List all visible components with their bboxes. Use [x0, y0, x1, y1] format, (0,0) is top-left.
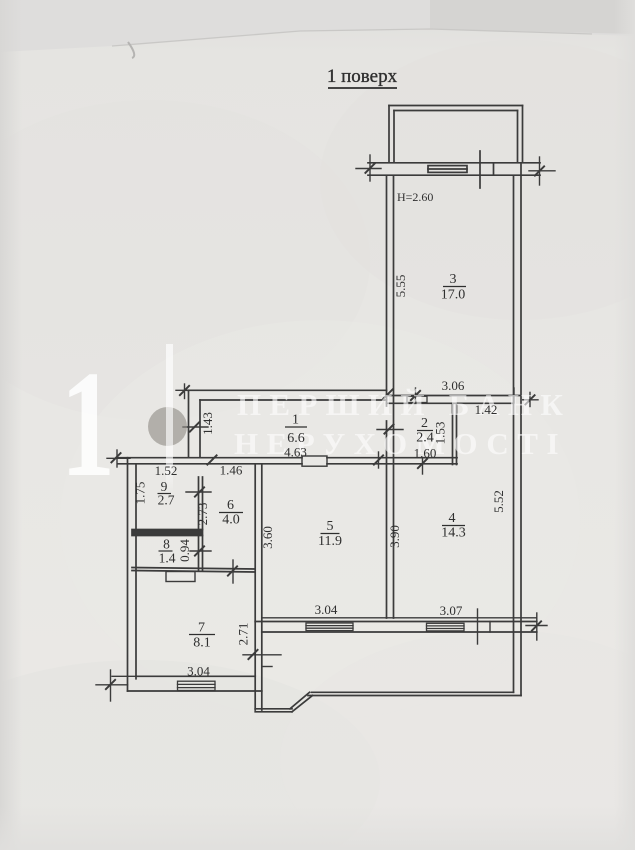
svg-text:8: 8	[163, 537, 170, 552]
svg-text:1.52: 1.52	[155, 463, 178, 478]
svg-text:1: 1	[61, 339, 116, 508]
svg-text:1.75: 1.75	[133, 482, 148, 505]
svg-text:1.4: 1.4	[159, 551, 176, 566]
svg-text:2.71: 2.71	[236, 623, 251, 646]
svg-text:1 поверх: 1 поверх	[327, 66, 398, 87]
svg-text:5: 5	[327, 519, 334, 534]
svg-text:2.7: 2.7	[158, 493, 175, 508]
svg-text:3: 3	[450, 272, 457, 287]
svg-text:3.04: 3.04	[315, 602, 338, 617]
svg-text:1.60: 1.60	[414, 446, 437, 461]
svg-text:1.43: 1.43	[200, 412, 215, 435]
svg-text:ПЕРШИЙ БАНК: ПЕРШИЙ БАНК	[237, 387, 571, 422]
svg-text:3.60: 3.60	[260, 526, 275, 549]
svg-text:H=2.60: H=2.60	[397, 190, 433, 204]
svg-text:17.0: 17.0	[441, 288, 466, 303]
svg-text:1.42: 1.42	[475, 402, 498, 417]
svg-text:6: 6	[227, 498, 234, 513]
svg-text:2.4: 2.4	[416, 431, 434, 446]
svg-text:1.46: 1.46	[220, 463, 243, 478]
svg-text:1.53: 1.53	[433, 422, 448, 445]
svg-text:4.63: 4.63	[284, 445, 307, 460]
svg-text:0.94: 0.94	[177, 539, 192, 562]
svg-text:11.9: 11.9	[318, 534, 342, 549]
svg-text:5.55: 5.55	[393, 275, 408, 298]
svg-text:3.06: 3.06	[442, 378, 465, 393]
svg-text:7: 7	[198, 621, 205, 636]
svg-text:14.3: 14.3	[441, 526, 466, 541]
svg-text:5.52: 5.52	[491, 490, 506, 513]
svg-text:2: 2	[421, 416, 428, 431]
svg-text:3.07: 3.07	[440, 603, 463, 618]
svg-text:3.90: 3.90	[387, 525, 402, 548]
svg-text:4: 4	[449, 511, 456, 526]
svg-text:3.04: 3.04	[187, 664, 210, 679]
svg-text:2.73: 2.73	[195, 503, 210, 526]
svg-text:1: 1	[292, 413, 299, 428]
svg-text:4.0: 4.0	[222, 513, 240, 528]
svg-text:8.1: 8.1	[193, 636, 211, 651]
